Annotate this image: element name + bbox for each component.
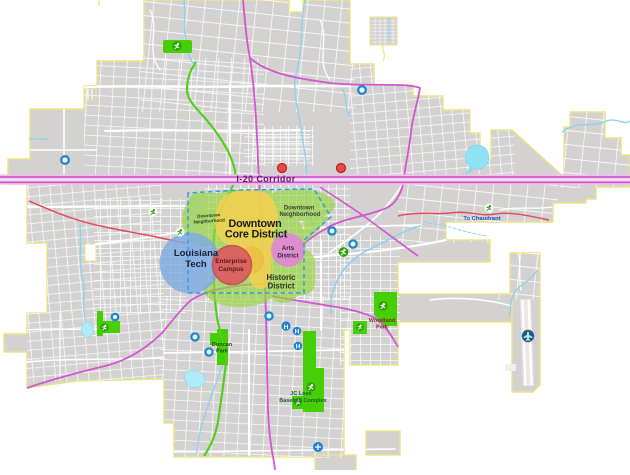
svg-text:Park: Park [216,349,229,355]
svg-text:Neighborhood: Neighborhood [280,212,321,218]
svg-text:Duncan: Duncan [212,342,233,348]
svg-text:Park: Park [376,325,389,331]
svg-text:District: District [277,253,298,260]
svg-text:I-20 Corridor: I-20 Corridor [236,174,295,184]
svg-text:H: H [284,324,289,331]
svg-text:Core District: Core District [225,229,288,241]
svg-text:H: H [296,344,301,351]
svg-text:Campus: Campus [218,266,244,273]
svg-text:JC Love: JC Love [290,391,311,397]
svg-text:Louisiana: Louisiana [174,248,219,259]
svg-text:Downtown: Downtown [284,206,315,212]
svg-text:District: District [268,282,295,291]
svg-text:To Chaudrant: To Chaudrant [463,216,500,222]
svg-text:Enterprise: Enterprise [215,258,247,265]
svg-text:Baseball Complex: Baseball Complex [279,398,327,404]
svg-text:H: H [295,329,300,336]
svg-text:Tech: Tech [185,259,207,270]
svg-text:Woodland: Woodland [369,318,395,324]
svg-text:Arts: Arts [282,245,295,252]
